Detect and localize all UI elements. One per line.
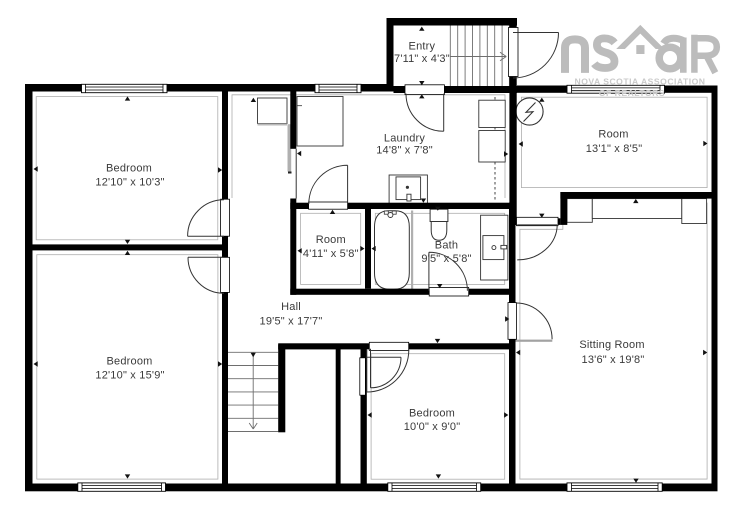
svg-text:Bedroom: Bedroom — [106, 356, 152, 368]
svg-text:19'5" x 17'7": 19'5" x 17'7" — [260, 316, 323, 328]
svg-text:10'0" x 9'0": 10'0" x 9'0" — [404, 421, 461, 433]
svg-text:Entry: Entry — [409, 40, 436, 52]
svg-text:Bedroom: Bedroom — [106, 163, 152, 175]
svg-text:12'10" x 10'3": 12'10" x 10'3" — [95, 177, 164, 189]
svg-text:Room: Room — [598, 129, 628, 141]
svg-text:Bath: Bath — [435, 239, 458, 251]
svg-text:4'11" x 5'8": 4'11" x 5'8" — [303, 248, 359, 260]
svg-text:12'10" x 15'9": 12'10" x 15'9" — [95, 370, 164, 382]
svg-text:Sitting Room: Sitting Room — [579, 339, 644, 351]
svg-text:7'11" x 4'3": 7'11" x 4'3" — [394, 53, 450, 65]
svg-text:Laundry: Laundry — [384, 133, 425, 145]
svg-text:Room: Room — [316, 234, 346, 246]
svg-text:9'5" x 5'8": 9'5" x 5'8" — [421, 253, 471, 265]
svg-text:Bedroom: Bedroom — [409, 407, 455, 419]
svg-text:13'6" x 19'8": 13'6" x 19'8" — [582, 354, 645, 366]
svg-text:14'8" x 7'8": 14'8" x 7'8" — [376, 145, 433, 157]
svg-text:13'1" x 8'5": 13'1" x 8'5" — [586, 143, 643, 155]
svg-text:Hall: Hall — [281, 301, 301, 313]
svg-text:OF REALTORS: OF REALTORS — [599, 88, 665, 98]
